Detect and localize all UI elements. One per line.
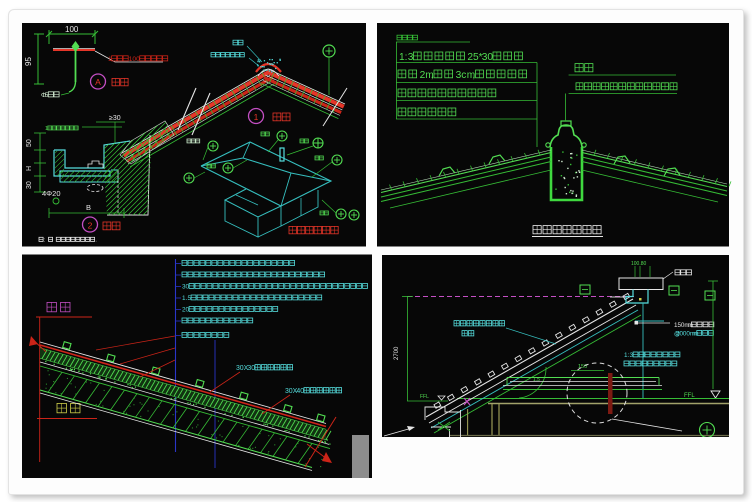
svg-text:,: , <box>472 70 475 81</box>
svg-text:A: A <box>95 77 101 87</box>
svg-text:95: 95 <box>24 57 33 66</box>
svg-text:2700: 2700 <box>394 346 400 360</box>
svg-text:50: 50 <box>26 139 33 147</box>
svg-text:30: 30 <box>26 181 33 189</box>
svg-text:2: 2 <box>88 221 93 231</box>
svg-text::: : <box>44 238 45 244</box>
svg-text:100: 100 <box>65 25 79 34</box>
svg-text:0: 0 <box>251 365 255 372</box>
svg-text:m: m <box>693 331 698 338</box>
svg-text:0: 0 <box>487 52 493 63</box>
svg-text:B: B <box>86 203 91 212</box>
svg-text:m: m <box>688 322 693 329</box>
svg-text:c: c <box>461 70 466 81</box>
svg-text:4Φ20: 4Φ20 <box>42 189 61 198</box>
svg-text:FFL: FFL <box>420 394 429 400</box>
svg-text:≥30: ≥30 <box>109 115 121 122</box>
svg-text:100.80: 100.80 <box>631 261 647 267</box>
svg-text:1: 1 <box>254 112 259 122</box>
svg-text:.: . <box>95 238 96 244</box>
svg-text:,: , <box>431 70 434 81</box>
svg-text:3: 3 <box>408 52 414 63</box>
svg-text:H: H <box>26 166 33 171</box>
